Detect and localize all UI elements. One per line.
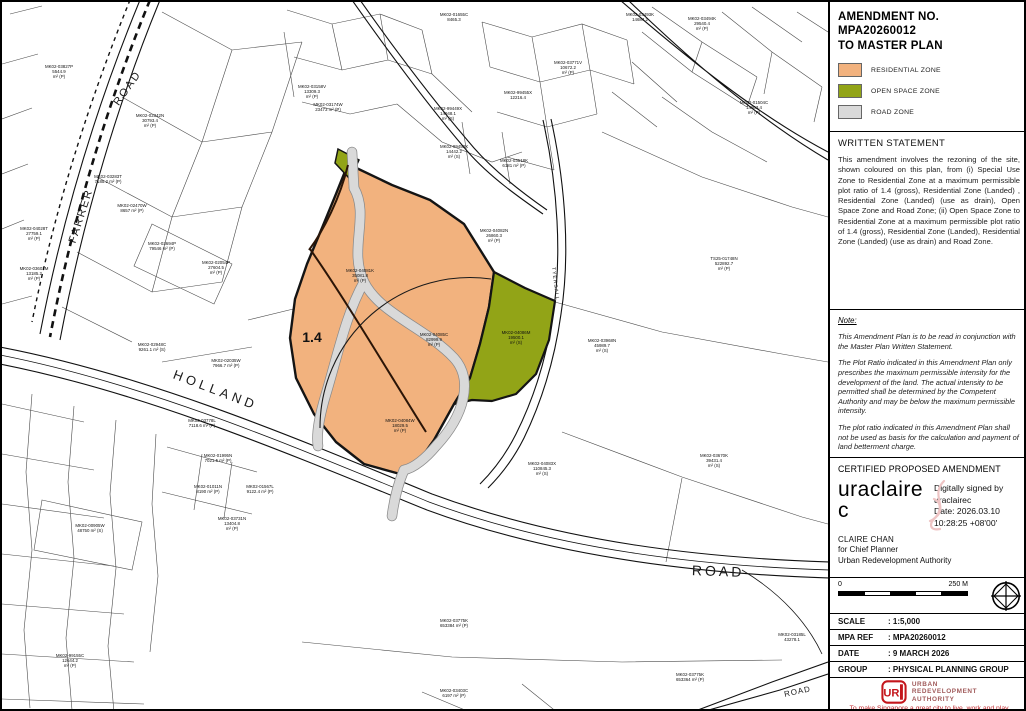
table-row-group: GROUP : PHYSICAL PLANNING GROUP <box>830 662 1026 678</box>
parcel-label: MK02-04083X110845.3m² (S) <box>528 461 556 476</box>
parcel-label: MK02-04028T27759.1m² (P) <box>20 226 48 241</box>
parcel-label: MK02-99449X14948.1m² (S) <box>434 106 462 121</box>
open-space-zone-swatch <box>838 84 862 98</box>
note-heading: Note: <box>838 316 1020 325</box>
parcel-label: MK02-01655C8465.3 <box>440 12 468 22</box>
legend-row-open-space: OPEN SPACE ZONE <box>838 84 1020 98</box>
note-section: Note: This Amendment Plan is to be read … <box>830 310 1026 458</box>
table-label: MPA REF <box>838 633 888 642</box>
signature-detail-line: Digitally signed by <box>934 483 1003 495</box>
legend-label: RESIDENTIAL ZONE <box>871 67 941 74</box>
map-canvas: 1.4MK02-04081K35081.8m² (P)MK02-04085C82… <box>2 2 828 711</box>
parcel-label: MK02-01011N8190 m² (P) <box>194 484 222 494</box>
parcel-label: MK02-02035W7966.7 m² (P) <box>211 358 241 368</box>
parcel-label: MK02-03694P79546 m² (P) <box>148 241 176 251</box>
table-value: : 9 MARCH 2026 <box>888 649 949 658</box>
signatory-org: Urban Redevelopment Authority <box>838 556 1020 566</box>
amendment-title-line1: AMENDMENT NO. MPA20260012 <box>838 10 1020 39</box>
signature-details: Digitally signed by uraclairec Date: 202… <box>934 479 1003 531</box>
parcel-label: MK02-03601M13185.2m² (P) <box>20 266 49 281</box>
ura-name-line: Redevelopment <box>912 688 977 695</box>
parcel-label: MK02-00905W48750 m² (S) <box>75 523 105 533</box>
certification-section: CERTIFIED PROPOSED AMENDMENT uraclaire c… <box>830 458 1026 578</box>
road-label: TYERSALL <box>550 267 560 301</box>
signatory-block: CLAIRE CHAN for Chief Planner Urban Rede… <box>838 535 1020 566</box>
parcel-label: MK02-03827P5544.9m² (P) <box>45 64 73 79</box>
certification-heading: CERTIFIED PROPOSED AMENDMENT <box>838 464 1020 474</box>
parcel-label: MK02-02342N30793.4m² (P) <box>136 113 164 128</box>
ura-name: Urban Redevelopment Authority <box>912 681 977 703</box>
parcel-label: MK02-03494K29540.4m² (P) <box>688 16 716 31</box>
table-value: : MPA20260012 <box>888 633 946 642</box>
parcel-label: MK02-03174W23473 m² (P) <box>313 102 343 112</box>
note-paragraph: The plot ratio indicated in this Amendme… <box>838 423 1020 452</box>
parcel-label: MK02-01567L9122.4 m² (P) <box>246 484 274 494</box>
digital-signature: uraclaire c Digitally signed by uraclair… <box>838 479 1020 531</box>
scalebar <box>838 591 968 596</box>
table-label: DATE <box>838 649 888 658</box>
road-label: FARRER <box>67 187 96 245</box>
written-statement-section: WRITTEN STATEMENT This amendment involve… <box>830 132 1026 310</box>
note-paragraph: This Amendment Plan is to be read in con… <box>838 332 1020 351</box>
table-label: GROUP <box>838 665 888 674</box>
table-value: : 1:5,000 <box>888 617 920 626</box>
amendment-title-line2: TO MASTER PLAN <box>838 39 1020 53</box>
signature-detail-line: 10:28:25 +08'00' <box>934 518 1003 530</box>
parcel-label: MK02-03283T7185.2 m² (P) <box>94 174 122 184</box>
signatory-title: for Chief Planner <box>838 545 1020 555</box>
written-statement-body: This amendment involves the rezoning of … <box>838 155 1020 247</box>
parcel-label: MK02-02948C9261.1 m² (S) <box>138 342 166 352</box>
ura-tagline: To make Singapore a great city to live, … <box>849 705 1008 711</box>
road-zone-swatch <box>838 105 862 119</box>
ura-logo-icon: UR <box>881 680 907 704</box>
info-panel: AMENDMENT NO. MPA20260012 TO MASTER PLAN… <box>828 2 1026 711</box>
title-section: AMENDMENT NO. MPA20260012 TO MASTER PLAN… <box>830 2 1026 132</box>
road-label: ROAD <box>111 69 144 108</box>
parcel-label: MK02-03158V13309.3m² (P) <box>298 84 326 99</box>
ura-name-line: Authority <box>912 696 977 703</box>
parcel-label: MK02-03403C6197 m² (P) <box>440 688 468 698</box>
signature-detail-line: uraclairec <box>934 495 1003 507</box>
parcel-label: MK02-03778L7118.6 m² (P) <box>188 418 216 428</box>
svg-text:UR: UR <box>883 687 899 699</box>
legend-row-residential: RESIDENTIAL ZONE <box>838 63 1020 77</box>
residential-zone-swatch <box>838 63 862 77</box>
signature-detail-line: Date: 2026.03.10 <box>934 506 1003 518</box>
table-value: : PHYSICAL PLANNING GROUP <box>888 665 1009 674</box>
table-row-scale: SCALE : 1:5,000 <box>830 614 1026 630</box>
table-row-mpa-ref: MPA REF : MPA20260012 <box>830 630 1026 646</box>
scalebar-labels: 0 250 M <box>838 581 968 590</box>
signature-line2: c <box>838 500 934 521</box>
parcel-label: MK02-01995N7021.5 m² (P) <box>204 453 232 463</box>
plot-ratio-label: 1.4 <box>302 329 322 345</box>
note-paragraph: The Plot Ratio indicated in this Amendme… <box>838 358 1020 416</box>
parcel-label: MK02-03775K653364 m² (P) <box>676 672 705 682</box>
scalebar-start-label: 0 <box>838 581 842 588</box>
scalebar-section: 0 250 M <box>830 578 1026 614</box>
ura-branding-section: UR Urban Redevelopment Authority To make… <box>830 678 1026 711</box>
road-label: ROAD <box>692 562 745 580</box>
signatory-name: CLAIRE CHAN <box>838 535 1020 545</box>
parcel-label: MK02-03968N45989.7m² (S) <box>588 338 616 353</box>
legend-row-road: ROAD ZONE <box>838 105 1020 119</box>
legend-label: OPEN SPACE ZONE <box>871 88 940 95</box>
parcel-label: TS25-01748N522892.7m² (P) <box>710 256 737 271</box>
parcel-label: MK02-03185L43278.1 <box>778 632 806 642</box>
parcel-label: MK02-99450X14442.2m² (S) <box>440 144 468 159</box>
parcel-label: MK02-03518K6181 m² (P) <box>500 158 528 168</box>
parcel-label: MK02-99455X12216.4 <box>504 90 532 100</box>
parcel-label: MK02-03731N13404.8m² (P) <box>218 516 246 531</box>
parcel-label: MK02-02470W8657 m² (P) <box>117 203 147 213</box>
parcel-label: MK02-03775K653384 m² (P) <box>440 618 469 628</box>
written-statement-heading: WRITTEN STATEMENT <box>838 138 1020 149</box>
north-compass-icon <box>990 580 1022 612</box>
signature-name: uraclaire c <box>838 479 934 531</box>
ura-name-line: Urban <box>912 681 977 688</box>
amendment-plan-page: 1.4MK02-04081K35081.8m² (P)MK02-04085C82… <box>0 0 1026 711</box>
parcel-label: MK02-04082N26860.3m² (P) <box>480 228 508 243</box>
table-row-date: DATE : 9 MARCH 2026 <box>830 646 1026 662</box>
table-label: SCALE <box>838 617 888 626</box>
scalebar-end-label: 250 M <box>949 581 968 588</box>
plan-map-svg: 1.4MK02-04081K35081.8m² (P)MK02-04085C82… <box>2 2 828 711</box>
legend-label: ROAD ZONE <box>871 109 914 116</box>
parcel-label: MK02-99155C12644.2m² (P) <box>56 653 84 668</box>
signature-line1: uraclaire <box>838 479 934 500</box>
parcel-label: MK02-03670K39431.4m² (S) <box>700 453 728 468</box>
road-label: ROAD <box>783 684 811 698</box>
legend: RESIDENTIAL ZONE OPEN SPACE ZONE ROAD ZO… <box>838 63 1020 119</box>
